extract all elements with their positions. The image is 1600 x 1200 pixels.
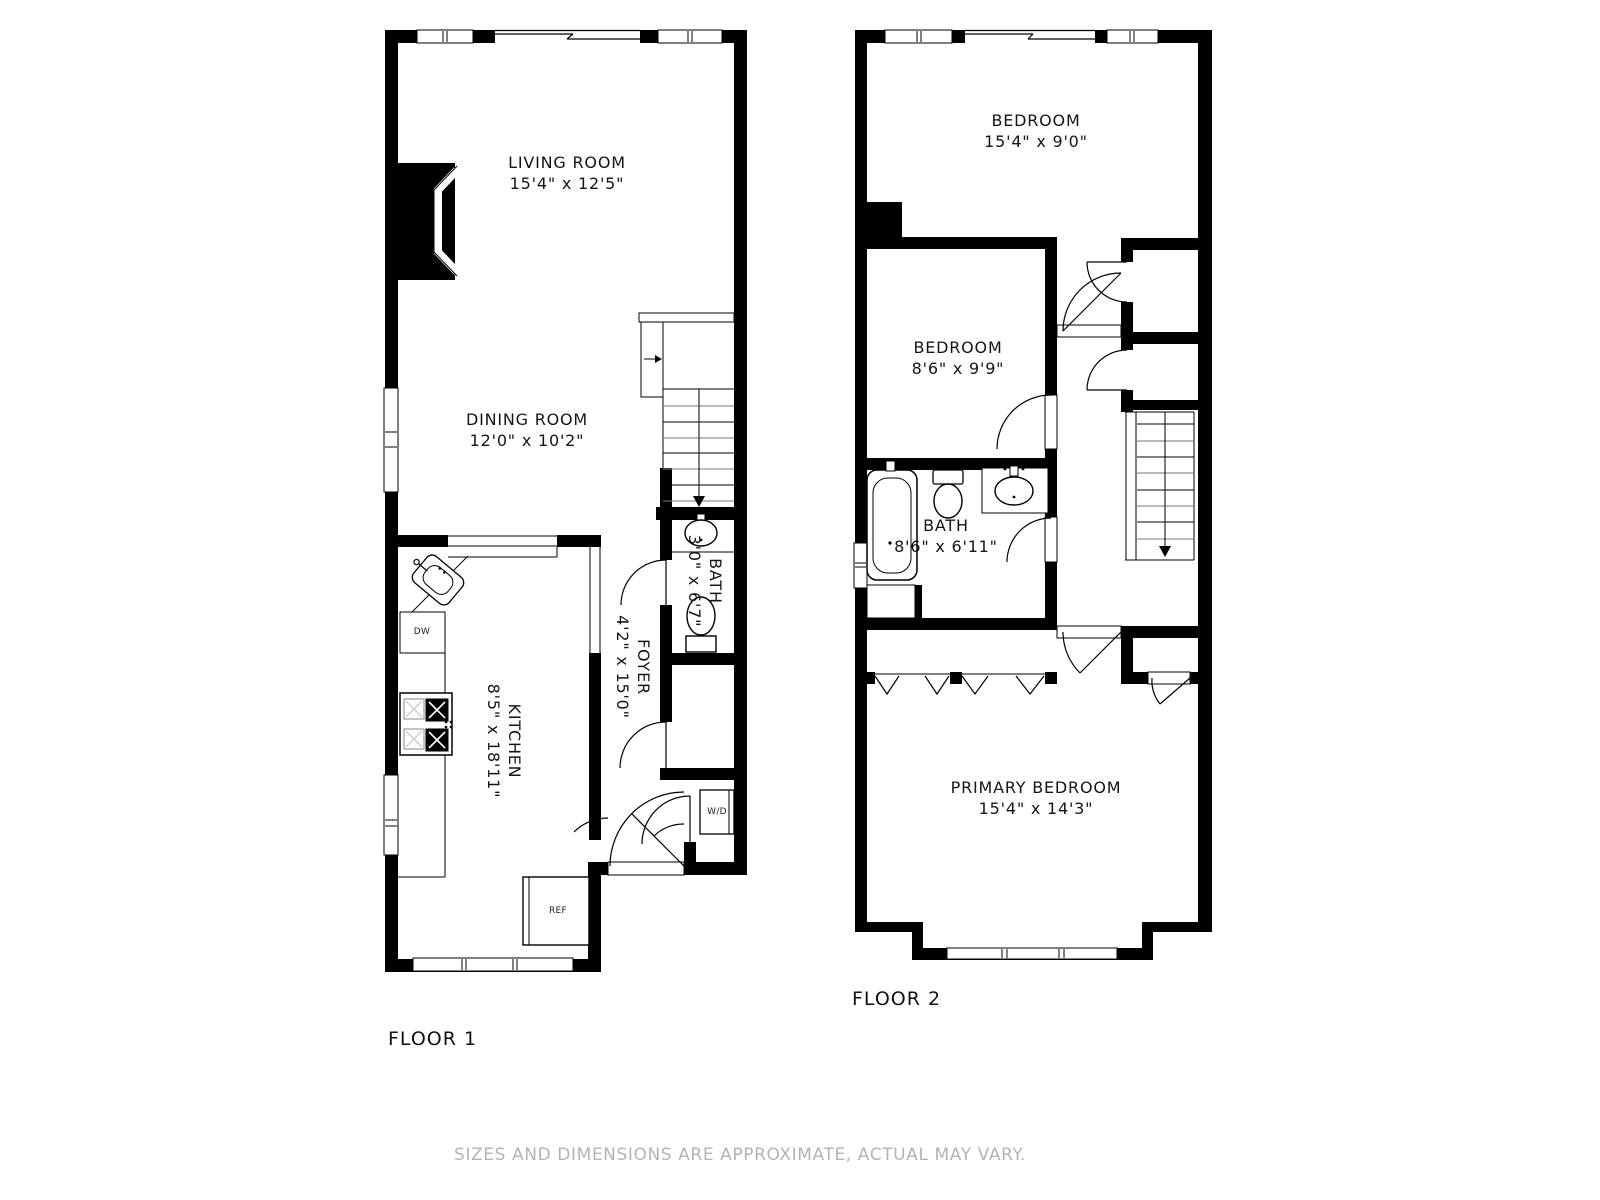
room-name: PRIMARY BEDROOM xyxy=(951,777,1122,798)
room-dims: 15'4" x 12'5" xyxy=(508,173,626,194)
room-dims: 8'6" x 6'11" xyxy=(894,536,998,557)
disclaimer-text: SIZES AND DIMENSIONS ARE APPROXIMATE, AC… xyxy=(0,1145,1480,1165)
room-dims: 3'0" x 6'7" xyxy=(684,535,705,628)
fireplace-icon xyxy=(398,163,457,280)
room-name: BEDROOM xyxy=(984,110,1088,131)
kitchen-sink-icon xyxy=(404,547,467,607)
washer-dryer-label: W/D xyxy=(707,807,727,817)
room-name: KITCHEN xyxy=(504,684,525,799)
staircase-floor1 xyxy=(639,313,734,507)
floorplan-drawing xyxy=(0,0,1600,1200)
sliding-window-icon xyxy=(965,30,1095,43)
sink-icon xyxy=(982,466,1048,513)
refrigerator-label: REF xyxy=(549,906,567,916)
kitchen-door-opening xyxy=(589,840,601,862)
floor2-title: FLOOR 2 xyxy=(852,988,941,1010)
living-room-label: LIVING ROOM 15'4" x 12'5" xyxy=(508,152,626,194)
primary-bedroom-label: PRIMARY BEDROOM 15'4" x 14'3" xyxy=(951,777,1122,819)
chimney-block xyxy=(855,202,902,242)
window-icon xyxy=(947,948,1117,959)
bedroom1-label: BEDROOM 15'4" x 9'0" xyxy=(984,110,1088,152)
window-icon xyxy=(413,958,573,971)
staircase-floor2 xyxy=(1125,412,1194,560)
stove-icon xyxy=(400,693,452,755)
window-icon xyxy=(854,543,867,588)
room-dims: 12'0" x 10'2" xyxy=(466,430,588,451)
room-dims: 4'2" x 15'0" xyxy=(612,615,633,719)
room-name: DINING ROOM xyxy=(466,409,588,430)
bath2-label: BATH 8'6" x 6'11" xyxy=(894,515,998,557)
room-name: BATH xyxy=(705,535,726,628)
toilet-icon xyxy=(933,470,963,518)
linen-closet xyxy=(867,585,915,618)
foyer-label: FOYER 4'2" x 15'0" xyxy=(612,615,654,719)
room-name: FOYER xyxy=(633,615,654,719)
room-name: LIVING ROOM xyxy=(508,152,626,173)
entry-door-sill xyxy=(608,862,684,875)
room-name: BATH xyxy=(894,515,998,536)
room-dims: 15'4" x 14'3" xyxy=(951,798,1122,819)
room-dims: 8'5" x 18'11" xyxy=(483,684,504,799)
floor1-title: FLOOR 1 xyxy=(388,1028,477,1050)
bedroom2-label: BEDROOM 8'6" x 9'9" xyxy=(912,337,1005,379)
dining-room-label: DINING ROOM 12'0" x 10'2" xyxy=(466,409,588,451)
sliding-window-icon xyxy=(495,30,640,43)
cased-opening xyxy=(448,536,600,653)
dishwasher-label: DW xyxy=(414,627,430,637)
kitchen-label: KITCHEN 8'5" x 18'11" xyxy=(483,684,525,799)
floorplan-image: LIVING ROOM 15'4" x 12'5" DINING ROOM 12… xyxy=(0,0,1600,1200)
room-dims: 15'4" x 9'0" xyxy=(984,131,1088,152)
room-name: BEDROOM xyxy=(912,337,1005,358)
floor2-plan xyxy=(854,30,1212,960)
room-dims: 8'6" x 9'9" xyxy=(912,358,1005,379)
bath1-label: BATH 3'0" x 6'7" xyxy=(684,535,726,628)
